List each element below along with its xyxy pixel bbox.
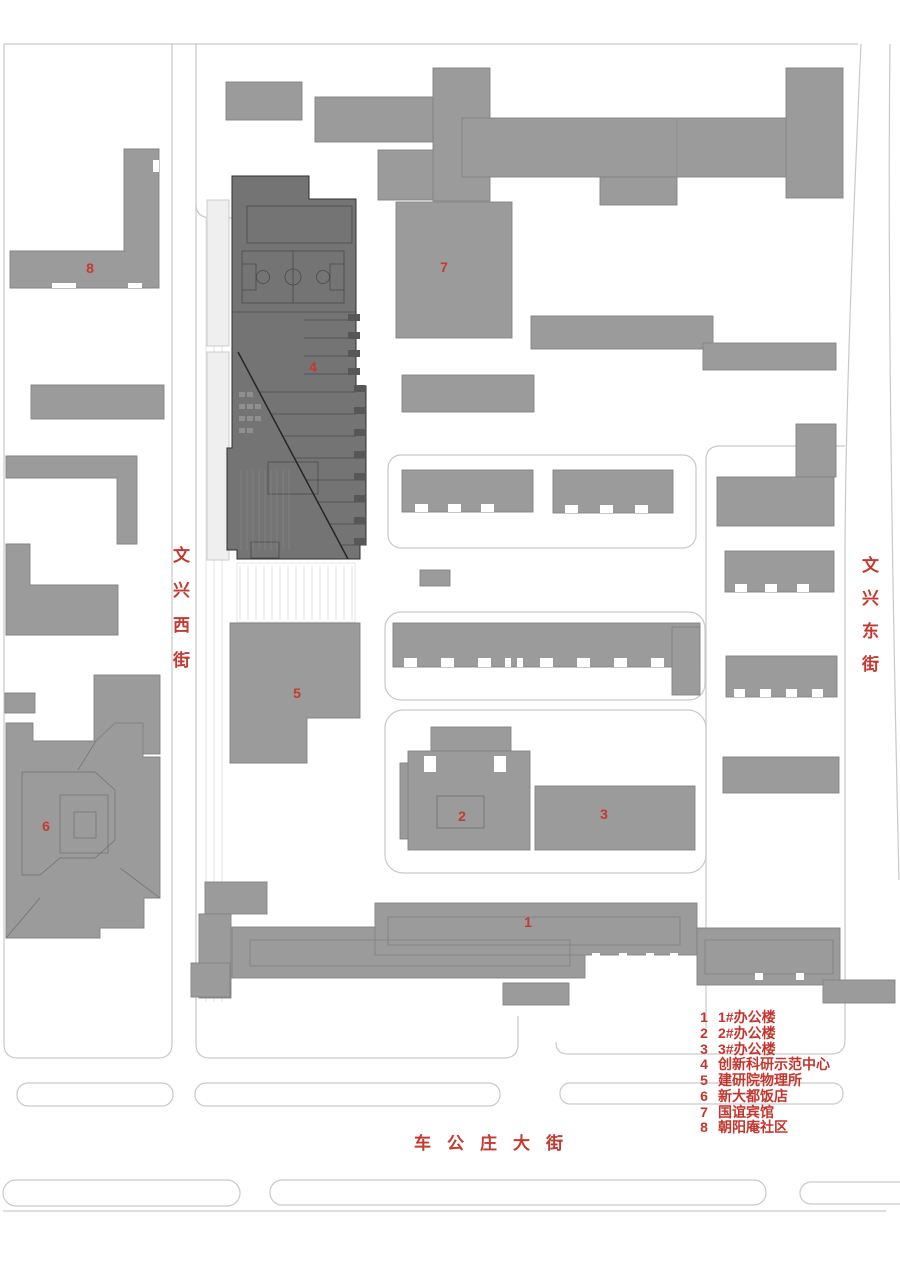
building-8-footprint <box>10 149 159 288</box>
building-small-north <box>226 82 302 120</box>
residential-slabs-mid <box>393 375 700 667</box>
plaza-steps-hatch <box>237 563 355 622</box>
building-2-footprint <box>400 727 530 850</box>
legend-num: 6 <box>699 1088 709 1104</box>
legend-num: 7 <box>699 1104 709 1120</box>
legend-num: 5 <box>699 1072 709 1088</box>
buildings-mid-north <box>531 316 836 370</box>
legend-num: 3 <box>699 1041 709 1057</box>
legend-num: 4 <box>699 1056 709 1072</box>
building-label-5: 5 <box>293 686 301 700</box>
building-label-7: 7 <box>440 260 448 274</box>
building-6-footprint <box>6 723 160 938</box>
building-7-hotel-cluster <box>315 68 843 338</box>
legend: 1 1#办公楼 2 2#办公楼 3 3#办公楼 4 创新科研示范中心 5 建研院… <box>699 1009 830 1135</box>
street-label-wenxing-west: 文兴西街 <box>167 546 192 686</box>
legend-num: 1 <box>699 1009 709 1025</box>
building-label-4: 4 <box>309 360 317 374</box>
street-label-wenxing-east: 文兴东街 <box>856 556 881 688</box>
legend-item: 8 朝阳庵社区 <box>699 1120 830 1136</box>
building-7-main <box>396 202 512 338</box>
building-label-6: 6 <box>42 819 50 833</box>
building-label-1: 1 <box>524 915 532 929</box>
road-east-street-east-curb <box>889 44 899 880</box>
building-label-8: 8 <box>86 261 94 275</box>
legend-label: 朝阳庵社区 <box>718 1117 788 1137</box>
legend-num: 2 <box>699 1025 709 1041</box>
site-plan-canvas: 1 2 3 4 5 6 7 8 文兴西街 文兴东街 车公庄大街 1 1#办公楼 … <box>0 0 900 1272</box>
context-buildings <box>5 68 895 1005</box>
building-4-footprint <box>207 176 366 560</box>
road-east-street-west-curb <box>845 44 861 560</box>
street-label-chegongzhuang: 车公庄大街 <box>414 1129 579 1154</box>
building-label-3: 3 <box>600 807 608 821</box>
residential-slabs-east <box>672 424 839 793</box>
building-label-2: 2 <box>458 809 466 823</box>
buildings-west-column <box>5 385 164 754</box>
legend-num: 8 <box>699 1119 709 1135</box>
building-1-footprint <box>191 882 895 1005</box>
building-3-footprint <box>535 786 695 850</box>
